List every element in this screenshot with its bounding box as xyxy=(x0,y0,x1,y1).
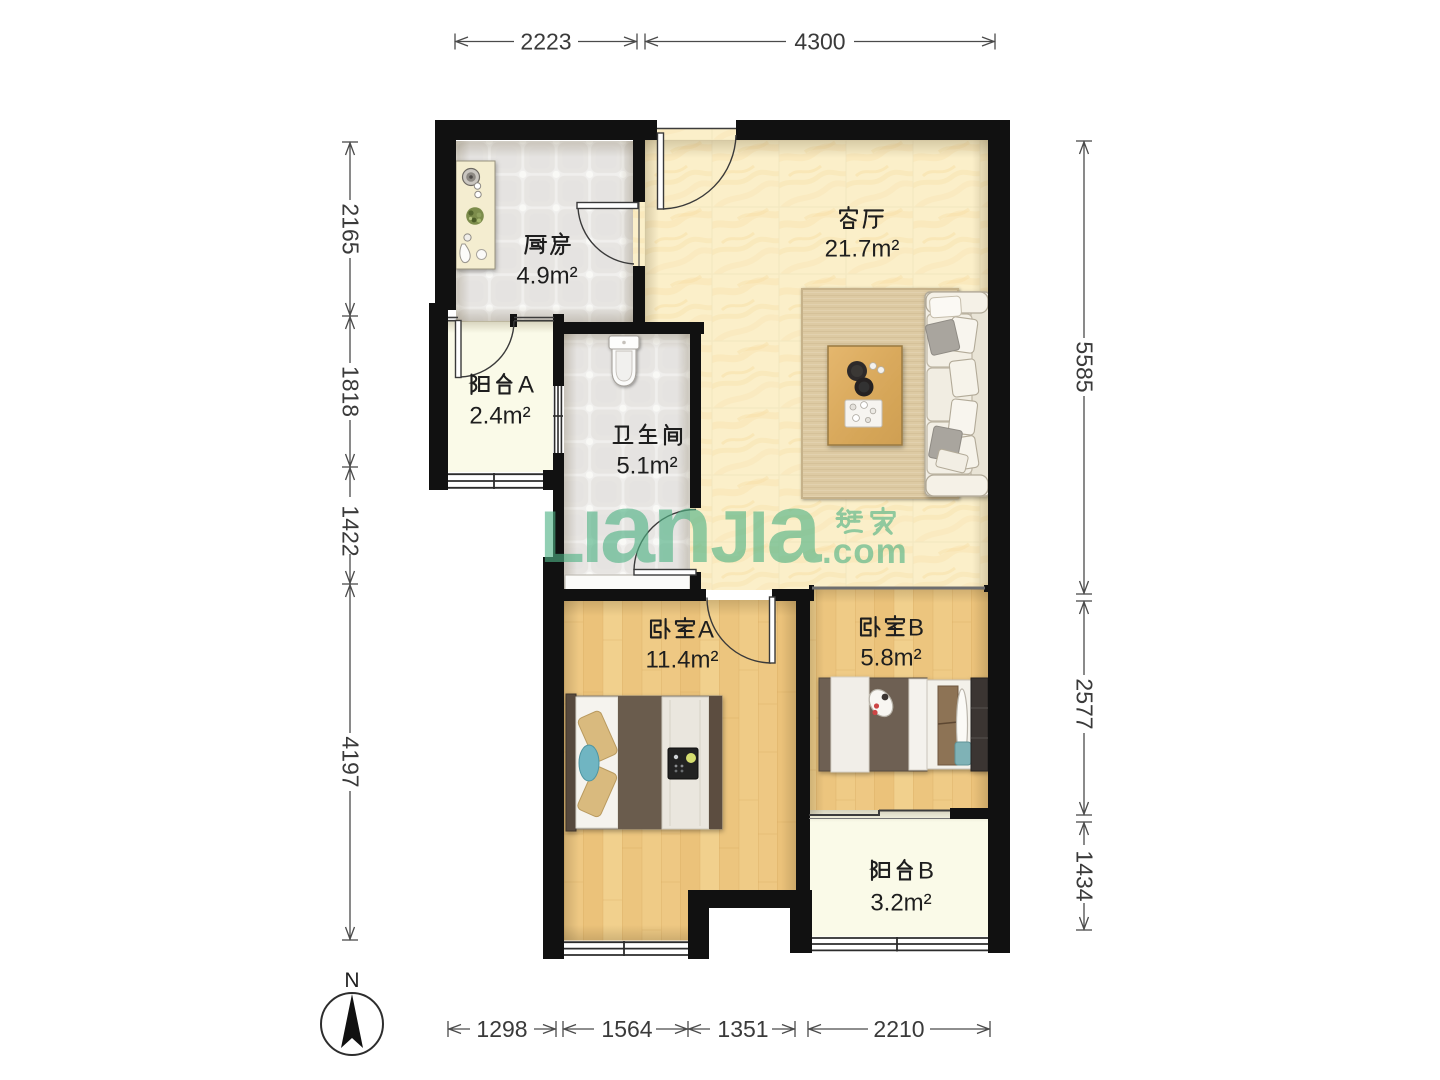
svg-text:1434: 1434 xyxy=(1072,850,1098,901)
svg-text:N: N xyxy=(344,969,359,992)
svg-text:1298: 1298 xyxy=(476,1016,527,1042)
svg-text:A: A xyxy=(518,372,534,399)
svg-text:4197: 4197 xyxy=(338,736,364,787)
svg-text:3.2m²: 3.2m² xyxy=(870,890,931,917)
svg-text:A: A xyxy=(698,617,714,644)
svg-text:1818: 1818 xyxy=(338,366,364,417)
svg-text:1564: 1564 xyxy=(601,1016,652,1042)
svg-text:2223: 2223 xyxy=(520,29,571,55)
svg-text:5.1m²: 5.1m² xyxy=(616,453,677,480)
svg-text:11.4m²: 11.4m² xyxy=(646,647,719,674)
svg-text:5.8m²: 5.8m² xyxy=(860,645,921,672)
svg-text:21.7m²: 21.7m² xyxy=(825,236,900,263)
svg-text:B: B xyxy=(908,615,924,642)
svg-text:1351: 1351 xyxy=(717,1016,768,1042)
svg-text:4.9m²: 4.9m² xyxy=(516,263,577,290)
svg-text:2165: 2165 xyxy=(338,203,364,254)
svg-text:.com: .com xyxy=(822,532,908,571)
svg-text:5585: 5585 xyxy=(1072,341,1098,392)
svg-text:2210: 2210 xyxy=(873,1016,924,1042)
svg-text:2577: 2577 xyxy=(1072,678,1098,729)
svg-text:2.4m²: 2.4m² xyxy=(469,403,530,430)
svg-text:1422: 1422 xyxy=(338,505,364,556)
svg-text:4300: 4300 xyxy=(794,29,845,55)
svg-text:B: B xyxy=(918,858,934,885)
